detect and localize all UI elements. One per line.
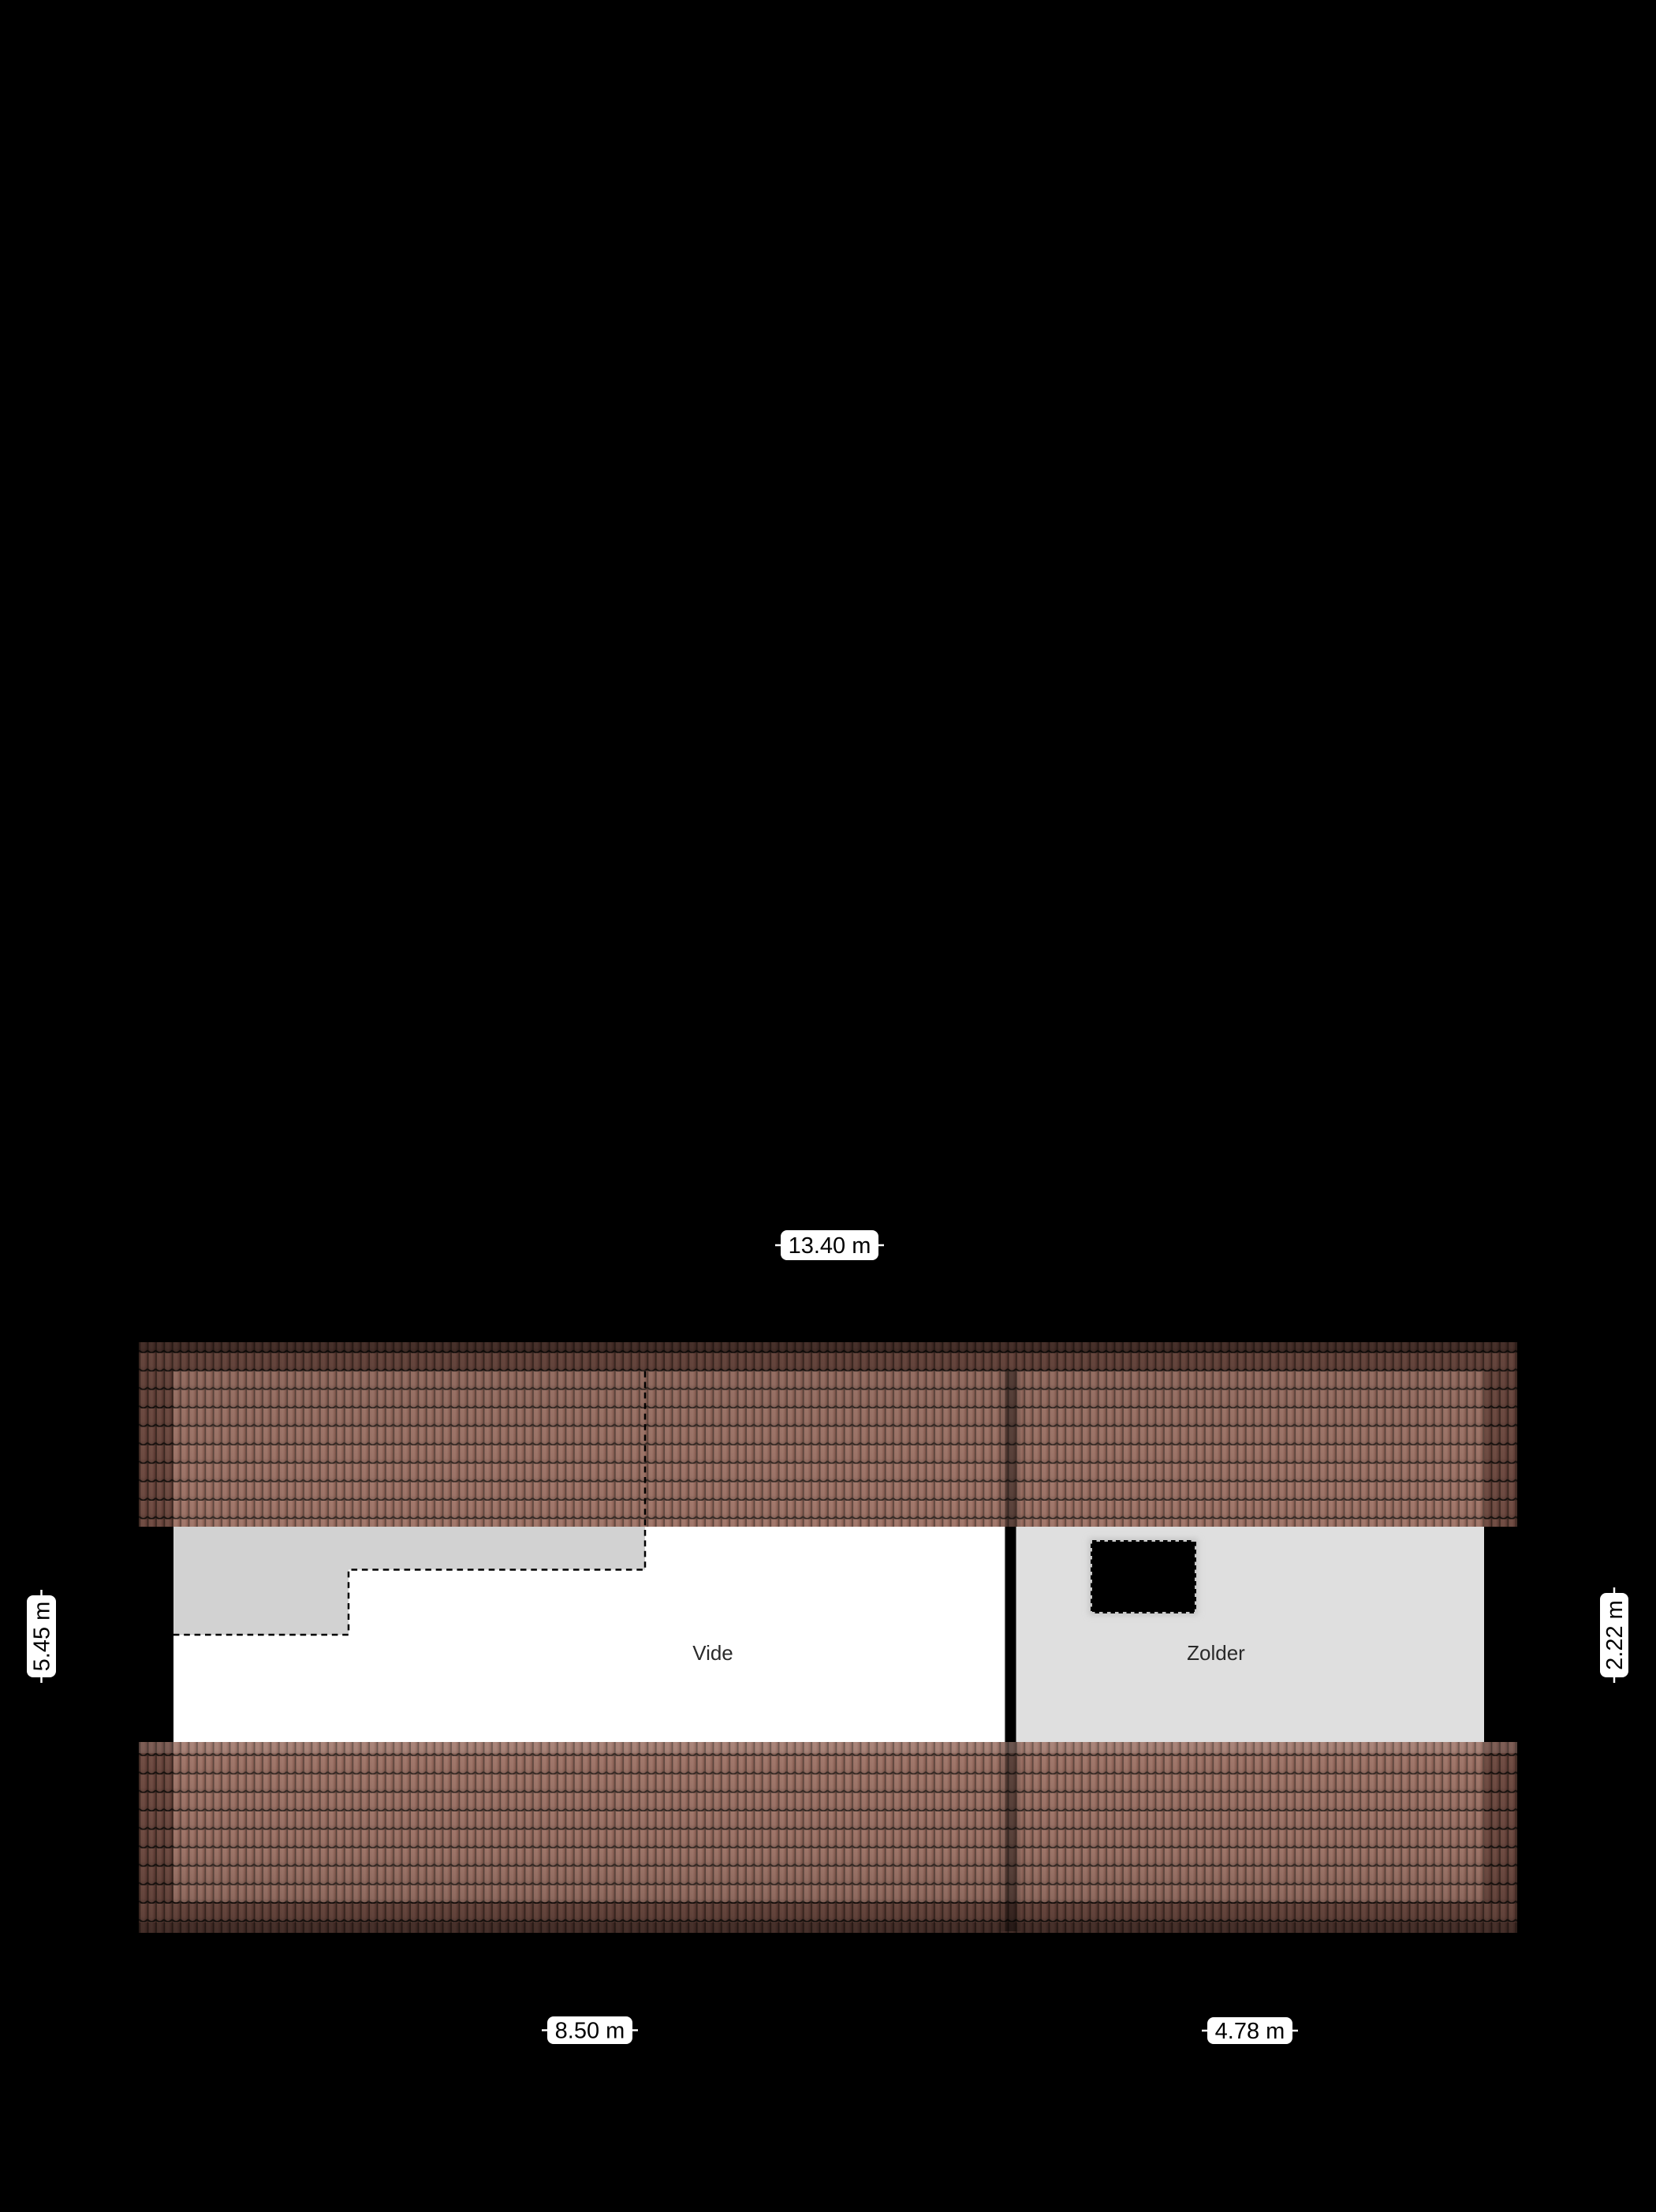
svg-text:13.40 m: 13.40 m [789,1233,871,1259]
svg-text:Vide: Vide [692,1641,733,1665]
svg-text:4.78 m: 4.78 m [1215,2019,1285,2044]
svg-text:Zolder: Zolder [1187,1641,1245,1665]
svg-text:5.45 m: 5.45 m [30,1602,55,1672]
svg-text:2.22 m: 2.22 m [1602,1600,1628,1670]
svg-text:8.50 m: 8.50 m [555,2019,625,2044]
